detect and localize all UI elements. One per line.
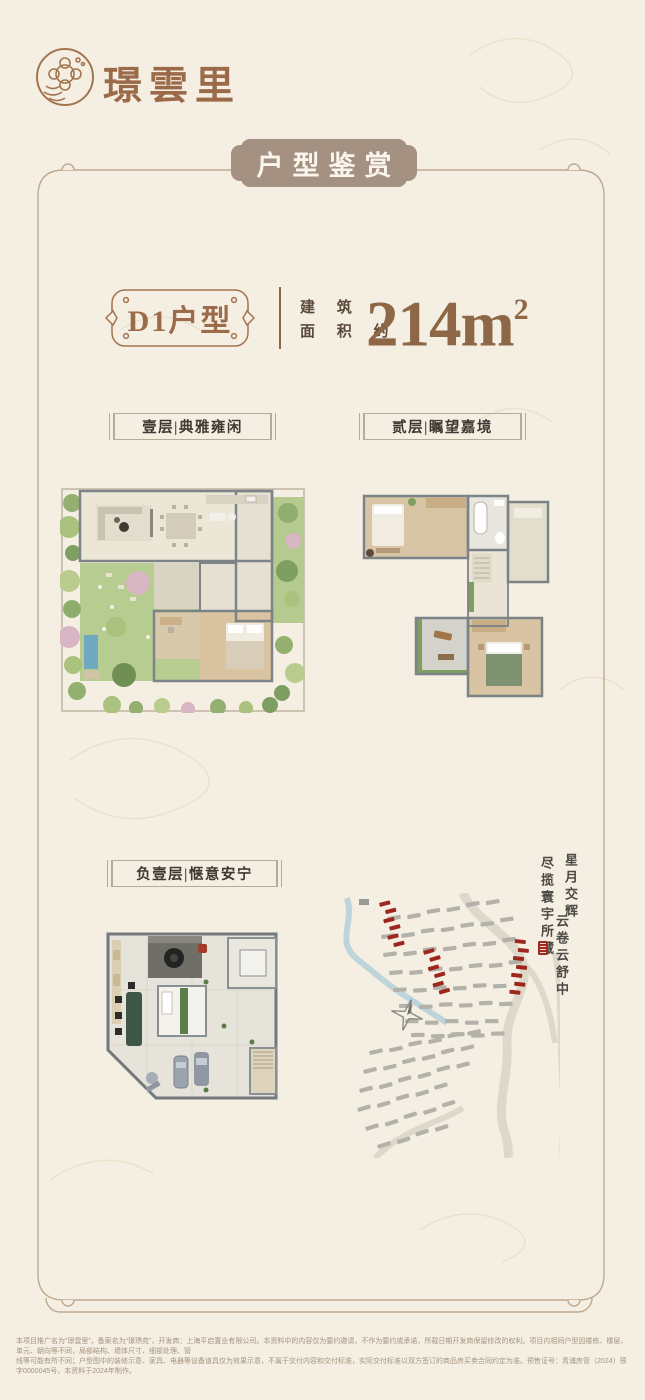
brand-emblem-icon bbox=[34, 46, 96, 108]
brand-name: 璟雲里 bbox=[103, 55, 241, 111]
floorplan-floor1-image bbox=[60, 487, 306, 713]
section-title-plaque: 户型鉴赏 bbox=[231, 139, 417, 187]
section-title: 户型鉴赏 bbox=[231, 139, 417, 187]
poem-line1a: 星月交辉 bbox=[561, 853, 580, 921]
floor1-label: 壹层|典雅雍闲 bbox=[114, 413, 271, 440]
seal-stamp-icon bbox=[538, 941, 548, 955]
unit-area-value: 214m2 bbox=[366, 281, 528, 358]
unit-name-box: D1户型 bbox=[106, 287, 254, 349]
basement-label: 负壹层|惬意安宁 bbox=[112, 860, 277, 887]
floorplan-basement-image bbox=[102, 930, 282, 1102]
unit-area-number: 214m bbox=[366, 289, 514, 361]
site-map-roads bbox=[346, 893, 560, 1158]
floor2-label: 贰层|瞩望嘉境 bbox=[364, 413, 521, 440]
unit-info-divider bbox=[279, 287, 281, 349]
disclaimer: 本项目推广名为“璟雲里”，备案名为“璟琇苑”，开发商：上海平启置业有限公司。本资… bbox=[16, 1337, 629, 1377]
compass-icon bbox=[387, 995, 426, 1034]
poster: 璟雲里 户型鉴赏 D1户型 建 筑 面 积 约 214m2 壹层|典雅雍闲 贰层… bbox=[0, 0, 645, 1400]
disclaimer-line1: 本项目推广名为“璟雲里”，备案名为“璟琇苑”，开发商：上海平启置业有限公司。本资… bbox=[16, 1337, 629, 1357]
unit-area-sup: 2 bbox=[514, 293, 528, 326]
floorplan-floor2-image bbox=[360, 492, 552, 698]
disclaimer-line2: 线等可能有所不同；户型图中的装修示意、家具、电器等设备道具仅为效果示意，不属于交… bbox=[16, 1357, 629, 1377]
site-map-image bbox=[335, 893, 560, 1158]
unit-name: D1户型 bbox=[106, 287, 254, 349]
site-map-landmark bbox=[359, 899, 369, 905]
